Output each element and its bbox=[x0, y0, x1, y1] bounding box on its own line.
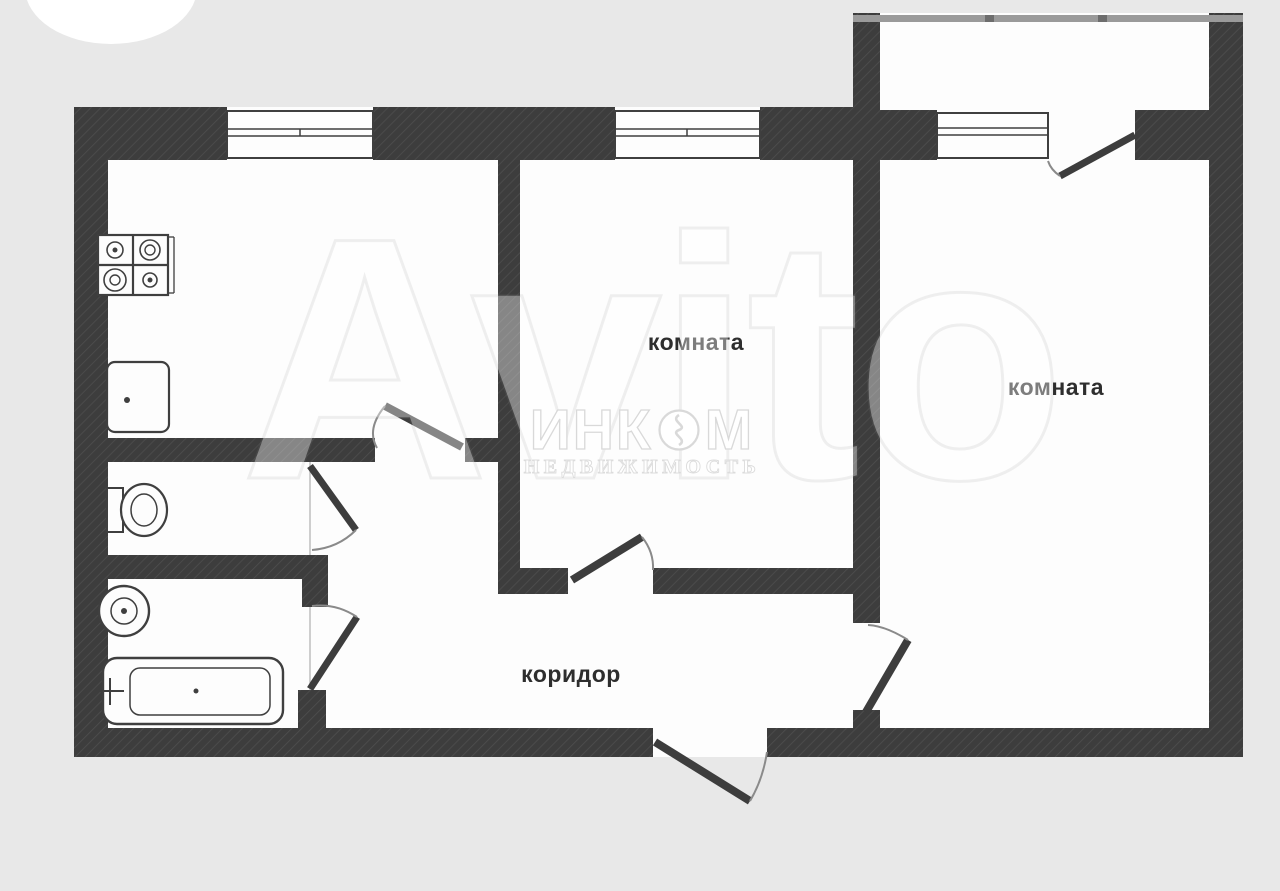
balcony-window-icon bbox=[937, 113, 1048, 158]
wall-wc-bath-divider bbox=[108, 555, 310, 579]
toilet-icon bbox=[107, 484, 167, 536]
wall-kitchen-room-divider bbox=[498, 160, 520, 592]
floor-plan-image: комната комната коридор Avito ИНК М НЕДВ… bbox=[0, 0, 1280, 891]
wall-rooms-divider bbox=[853, 110, 880, 623]
label-room-right: комната bbox=[1008, 374, 1104, 400]
balcony-rail bbox=[853, 15, 1243, 22]
floor-plan-drawing: комната комната коридор bbox=[0, 0, 1280, 891]
wall-outer-left bbox=[74, 107, 108, 757]
stove-icon bbox=[98, 235, 174, 295]
wall-balcony-room-b bbox=[1135, 110, 1209, 160]
room-center-window-icon bbox=[615, 111, 760, 158]
wall-top-middle bbox=[373, 107, 615, 160]
label-room-center: комната bbox=[648, 329, 744, 355]
wall-bath-stub bbox=[298, 690, 326, 728]
bathtub-icon bbox=[100, 658, 283, 724]
wall-wc-bath-divider-step bbox=[302, 555, 328, 607]
wall-room-center-bottom-a bbox=[498, 568, 568, 594]
kitchen-sink-icon bbox=[107, 362, 169, 432]
wall-outer-right bbox=[1209, 13, 1243, 757]
wall-room-center-bottom-b bbox=[653, 568, 853, 594]
wall-top-left bbox=[74, 107, 227, 160]
wall-top-right bbox=[760, 107, 855, 160]
wall-below-kitchen-b bbox=[465, 438, 498, 462]
wall-bottom-right bbox=[767, 728, 1243, 757]
wall-bottom-left bbox=[74, 728, 653, 757]
wall-room-right-door-stub bbox=[853, 710, 880, 728]
wall-balcony-room-a bbox=[880, 110, 937, 160]
wash-basin-icon bbox=[99, 586, 149, 636]
wall-below-kitchen-a bbox=[74, 438, 375, 462]
kitchen-window-icon bbox=[227, 111, 373, 158]
label-corridor: коридор bbox=[521, 661, 621, 687]
